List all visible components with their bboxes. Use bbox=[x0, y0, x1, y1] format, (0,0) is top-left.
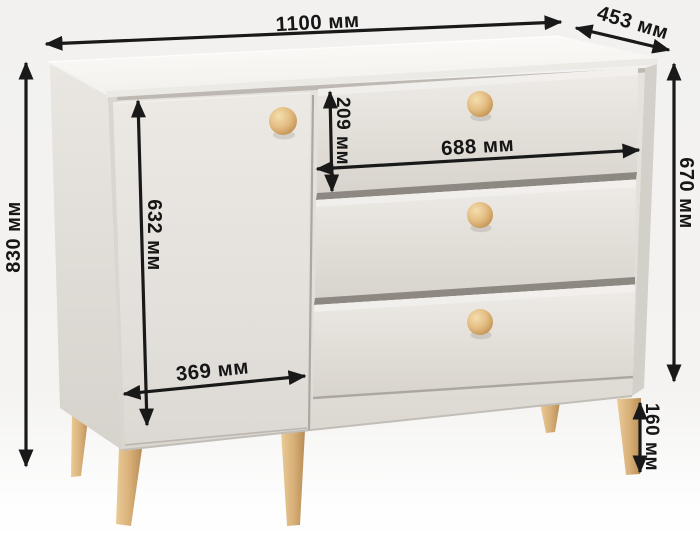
dim-label-drawer-width: 688 мм bbox=[440, 133, 515, 160]
drawer-2-knob bbox=[467, 202, 493, 228]
dim-arrow-drawer-height bbox=[330, 92, 332, 191]
dim-label-overall-height: 830 мм bbox=[3, 201, 25, 273]
dresser-dimension-drawing: 1100 мм 453 мм 830 мм 670 мм 209 мм 688 … bbox=[0, 0, 700, 540]
door-knob bbox=[269, 107, 297, 135]
dim-label-leg-height: 160 мм bbox=[641, 403, 662, 471]
dim-label-door-height: 632 мм bbox=[143, 199, 165, 271]
drawer-1-knob bbox=[467, 91, 493, 117]
dim-label-carcass-height: 670 мм bbox=[675, 157, 697, 229]
dim-label-drawer-height: 209 мм bbox=[332, 97, 353, 165]
drawers bbox=[313, 68, 638, 398]
dim-label-overall-width: 1100 мм bbox=[275, 9, 360, 36]
drawer-3-knob bbox=[467, 309, 493, 335]
product-diagram: 1100 мм 453 мм 830 мм 670 мм 209 мм 688 … bbox=[0, 0, 700, 540]
